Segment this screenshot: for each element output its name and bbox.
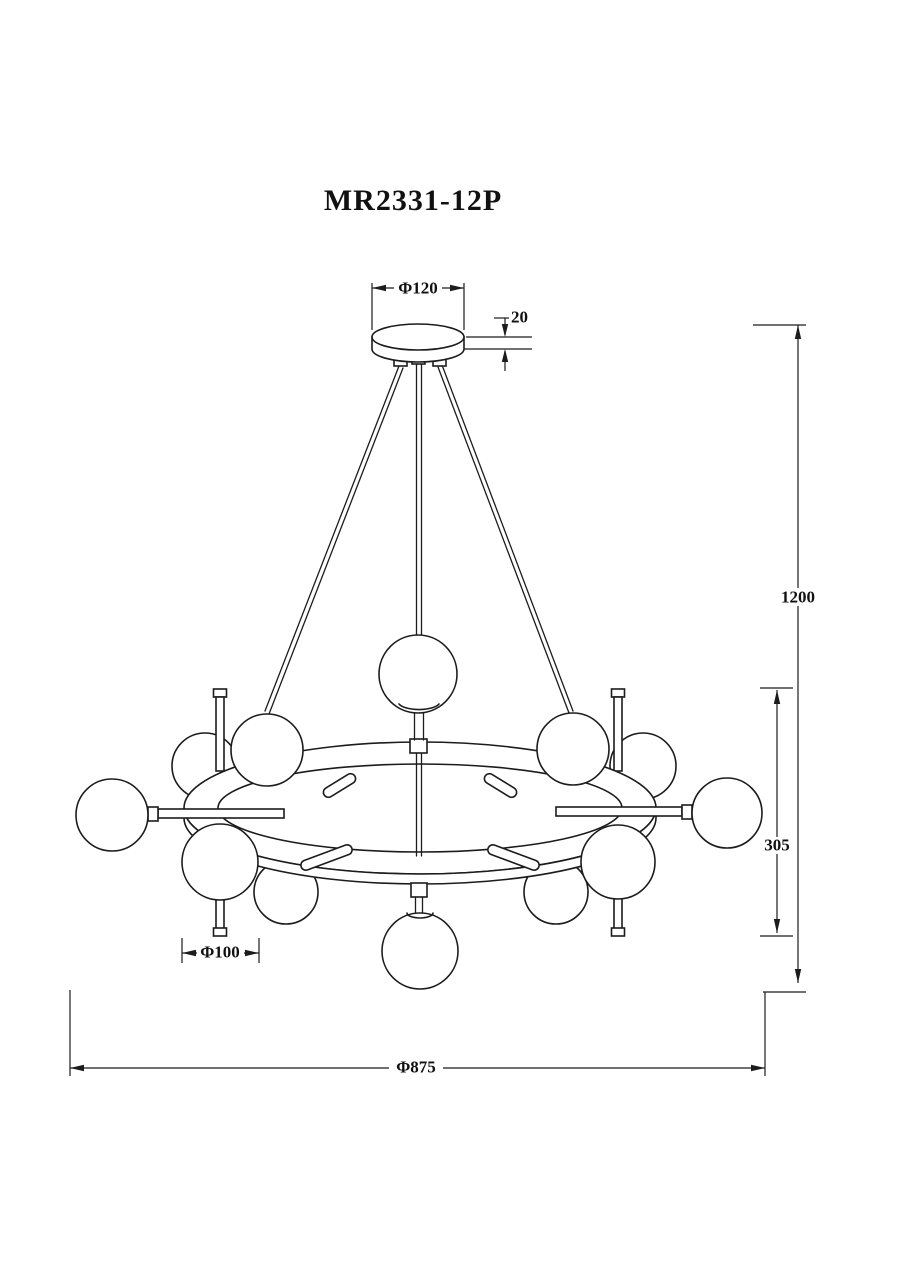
technical-drawing-sheet: Φ120 20 (0, 0, 904, 1280)
glass-globe-front (537, 713, 609, 785)
glass-globe-side (692, 778, 762, 848)
suspension-height-label: 1200 (781, 588, 815, 607)
inner-socket (322, 772, 358, 799)
glass-globe-side (76, 779, 148, 851)
overall-diameter-label: Φ875 (396, 1058, 436, 1077)
dim-globe-diameter: Φ100 (182, 938, 259, 963)
dim-canopy-diameter: Φ120 (372, 279, 464, 331)
inner-socket (483, 772, 519, 799)
dim-canopy-thickness: 20 (464, 308, 532, 372)
model-number-title: MR2331-12P (324, 184, 502, 217)
dim-suspension-height: 1200 (753, 325, 818, 992)
pin-cap (612, 928, 625, 936)
chandelier-dimension-drawing: Φ120 20 (0, 0, 904, 1280)
ceiling-canopy (372, 324, 464, 366)
glass-globe-top (379, 635, 457, 713)
glass-globe-front (581, 825, 655, 899)
side-arm (158, 809, 284, 818)
body-height-label: 305 (764, 836, 790, 855)
canopy-thickness-label: 20 (511, 308, 528, 327)
glass-globe-front (231, 714, 303, 786)
globe-mount (411, 883, 427, 897)
side-arm (556, 807, 682, 816)
glass-globe-bottom (382, 913, 458, 989)
canopy-diameter-label: Φ120 (398, 279, 438, 298)
globe-mount (148, 807, 158, 821)
chandelier-body (76, 635, 762, 989)
glass-globe-front (182, 824, 258, 900)
pin-cap (214, 689, 227, 697)
globe-mount (410, 739, 427, 753)
dim-body-height: 305 (758, 688, 796, 936)
globe-diameter-label: Φ100 (200, 943, 240, 962)
candle-pin (614, 697, 622, 771)
globe-mount (682, 805, 692, 819)
candle-pin (216, 697, 224, 771)
pin-cap (214, 928, 227, 936)
canopy-top (372, 324, 464, 350)
pin-cap (612, 689, 625, 697)
dim-overall-diameter: Φ875 (70, 990, 765, 1077)
